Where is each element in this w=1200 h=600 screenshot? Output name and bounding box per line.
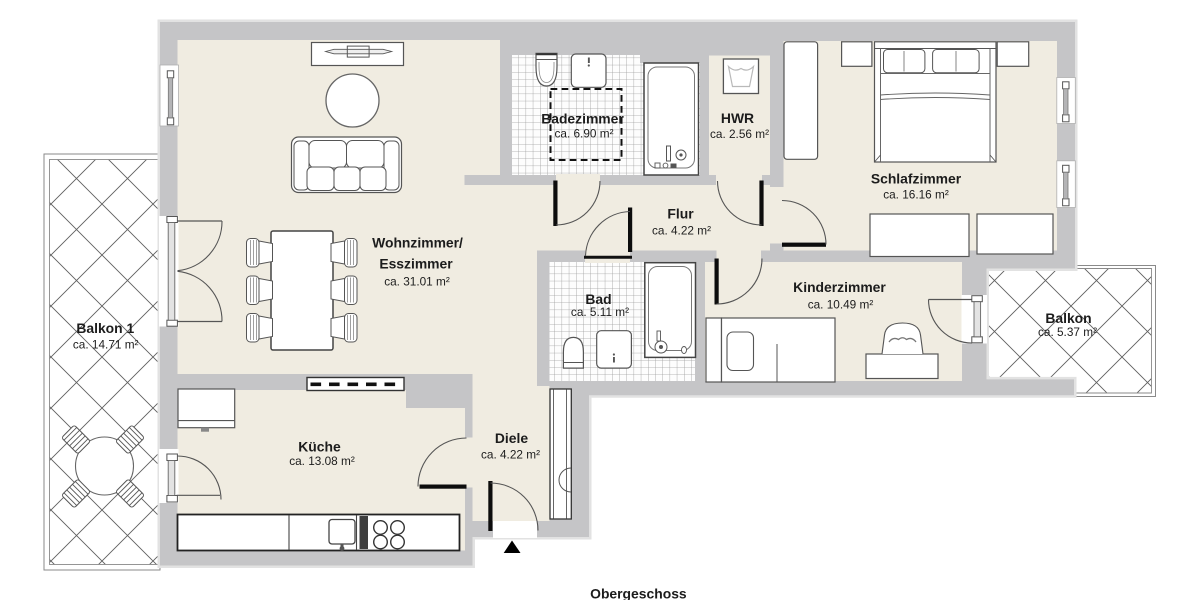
svg-text:HWR: HWR — [721, 110, 754, 126]
svg-text:Küche: Küche — [298, 438, 341, 454]
svg-text:Diele: Diele — [495, 430, 528, 446]
svg-text:Badezimmer: Badezimmer — [541, 110, 624, 126]
svg-text:ca. 5.11 m²: ca. 5.11 m² — [571, 305, 629, 319]
svg-text:Balkon 1: Balkon 1 — [76, 320, 134, 336]
svg-text:ca. 6.90 m²: ca. 6.90 m² — [554, 127, 613, 141]
svg-text:ca. 16.16 m²: ca. 16.16 m² — [883, 188, 949, 202]
svg-text:ca. 2.56 m²: ca. 2.56 m² — [710, 127, 769, 141]
svg-text:ca. 10.49 m²: ca. 10.49 m² — [808, 298, 874, 312]
svg-text:Esszimmer: Esszimmer — [379, 256, 453, 272]
svg-text:Flur: Flur — [667, 205, 694, 221]
svg-text:ca. 4.22 m²: ca. 4.22 m² — [652, 223, 711, 237]
svg-text:ca. 13.08 m²: ca. 13.08 m² — [289, 454, 355, 468]
svg-text:Kinderzimmer: Kinderzimmer — [793, 279, 886, 295]
svg-text:ca. 4.22 m²: ca. 4.22 m² — [481, 448, 540, 462]
svg-text:Balkon: Balkon — [1045, 310, 1091, 326]
svg-text:ca. 31.01 m²: ca. 31.01 m² — [384, 275, 450, 289]
svg-text:ca. 5.37 m²: ca. 5.37 m² — [1038, 325, 1097, 339]
svg-text:ca. 14.71 m²: ca. 14.71 m² — [73, 338, 139, 352]
svg-text:Wohnzimmer/: Wohnzimmer/ — [372, 235, 463, 251]
svg-text:Obergeschoss: Obergeschoss — [590, 585, 687, 600]
svg-text:Schlafzimmer: Schlafzimmer — [871, 171, 962, 187]
